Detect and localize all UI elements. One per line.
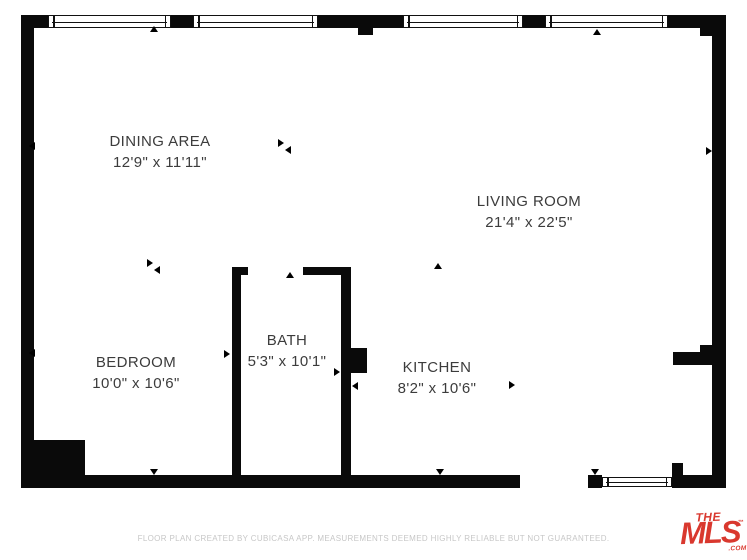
window-bottom <box>602 477 672 487</box>
window-top-4 <box>545 15 668 28</box>
opening-arrow-icon <box>434 263 442 269</box>
opening-arrow-icon <box>706 147 712 155</box>
wall-left <box>21 15 34 488</box>
wall-corner-block <box>28 440 85 476</box>
room-name: DINING AREA <box>109 131 210 152</box>
window-endcap <box>165 16 167 27</box>
opening-arrow-icon <box>593 29 601 35</box>
wall-bath-left <box>232 267 241 475</box>
wall-bottom-right-corner <box>672 475 726 488</box>
opening-arrow-icon <box>150 469 158 475</box>
opening-arrow-icon <box>147 259 153 267</box>
window-endcap <box>662 16 664 27</box>
opening-arrow-icon <box>286 272 294 278</box>
room-dimensions: 10'0" x 10'6" <box>92 373 179 394</box>
room-label-dining-area: DINING AREA 12'9" x 11'11" <box>109 131 210 173</box>
wall-bottom-pier <box>588 475 602 488</box>
wall-alcove-top <box>673 352 713 365</box>
wall-alcove-stub <box>672 463 683 476</box>
window-endcap <box>607 478 609 486</box>
window-top-2 <box>193 15 318 28</box>
opening-arrow-icon <box>352 382 358 390</box>
opening-arrow-icon <box>154 266 160 274</box>
window-midline <box>407 22 519 23</box>
window-endcap <box>408 16 410 27</box>
room-name: LIVING ROOM <box>477 191 581 212</box>
room-dimensions: 8'2" x 10'6" <box>398 378 477 399</box>
opening-arrow-icon <box>591 469 599 475</box>
opening-arrow-icon <box>509 381 515 389</box>
opening-arrow-icon <box>436 469 444 475</box>
window-endcap <box>517 16 519 27</box>
wall-chase-block <box>351 348 367 373</box>
wall-bath-right <box>341 267 351 475</box>
wall-bath-top-stub <box>232 267 248 275</box>
room-name: KITCHEN <box>398 357 477 378</box>
room-label-living-room: LIVING ROOM 21'4" x 22'5" <box>477 191 581 233</box>
wall-top-middle <box>318 15 403 28</box>
logo-mls-text: MLS <box>679 516 739 549</box>
wall-top-pier-1 <box>171 15 193 28</box>
room-dimensions: 21'4" x 22'5" <box>477 212 581 233</box>
room-label-bath: BATH 5'3" x 10'1" <box>248 330 327 372</box>
room-dimensions: 5'3" x 10'1" <box>248 351 327 372</box>
wall-right <box>712 15 726 488</box>
wall-alcove-step <box>700 345 713 353</box>
logo-com-text: .COM <box>728 545 746 553</box>
window-midline <box>52 22 167 23</box>
floor-plan: DINING AREA 12'9" x 11'11" LIVING ROOM 2… <box>0 0 747 560</box>
opening-arrow-icon <box>224 350 230 358</box>
window-endcap <box>312 16 314 27</box>
wall-bottom-main <box>21 475 520 488</box>
opening-arrow-icon <box>334 368 340 376</box>
room-name: BATH <box>248 330 327 351</box>
opening-arrow-icon <box>150 26 158 32</box>
window-endcap <box>550 16 552 27</box>
window-endcap <box>198 16 200 27</box>
disclaimer-text: FLOOR PLAN CREATED BY CUBICASA APP. MEAS… <box>0 534 747 543</box>
themls-logo: THE MLS ™ .COM <box>678 507 746 559</box>
wall-top-middle-notch <box>358 28 373 35</box>
opening-arrow-icon <box>29 142 35 150</box>
window-midline <box>606 482 668 483</box>
logo-trademark: ™ <box>738 520 744 526</box>
wall-top-pier-2 <box>523 15 545 28</box>
window-top-3 <box>403 15 523 28</box>
opening-arrow-icon <box>285 146 291 154</box>
window-endcap <box>666 478 668 486</box>
window-midline <box>549 22 664 23</box>
room-name: BEDROOM <box>92 352 179 373</box>
window-midline <box>197 22 314 23</box>
room-label-bedroom: BEDROOM 10'0" x 10'6" <box>92 352 179 394</box>
room-label-kitchen: KITCHEN 8'2" x 10'6" <box>398 357 477 399</box>
opening-arrow-icon <box>29 349 35 357</box>
window-endcap <box>53 16 55 27</box>
opening-arrow-icon <box>278 139 284 147</box>
room-dimensions: 12'9" x 11'11" <box>109 152 210 173</box>
